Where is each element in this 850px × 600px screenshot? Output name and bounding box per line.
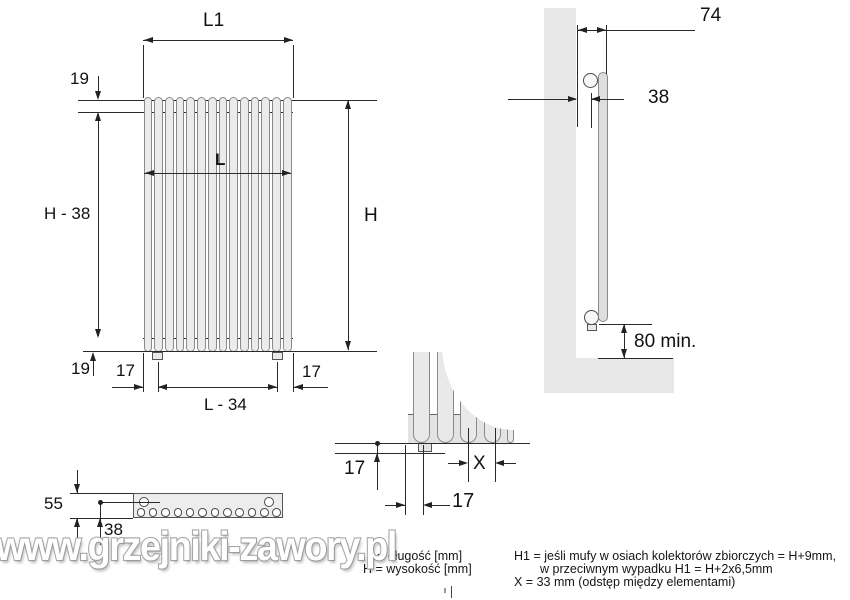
stub-line [335, 453, 445, 454]
radiator-tube [251, 97, 260, 352]
cropped-mark [451, 586, 452, 598]
tube-circle [161, 508, 170, 517]
dim-line-l1 [143, 40, 293, 41]
arrow-up-icon [95, 112, 101, 121]
radiator-tube [144, 97, 153, 352]
radiator-tube [186, 97, 195, 352]
tube-circle [211, 508, 220, 517]
collector-top-circle [583, 73, 598, 88]
radiator-tube [240, 97, 249, 352]
note-h1-line2: w przeciwnym wypadku H1 = H+2x6,5mm [540, 563, 773, 576]
dim-label-h: H [364, 206, 378, 225]
arrow-left-icon [495, 460, 504, 466]
dim-label-74: 74 [700, 6, 721, 25]
dim-label-80min: 80 min. [634, 332, 696, 351]
arrow-left-icon [423, 502, 432, 508]
note-x: X = 33 mm (odstęp między elementami) [514, 576, 735, 589]
radiator-tube [261, 97, 270, 352]
extension-line [143, 45, 144, 98]
radiator-tube [154, 97, 163, 352]
extension-line [293, 45, 294, 98]
radiator-tube [229, 97, 238, 352]
dim-line-74 [577, 30, 695, 31]
pipe-stub-detail [418, 443, 432, 452]
dim-line-17v [377, 443, 378, 490]
cropped-mark [444, 588, 446, 593]
dim-label-38: 38 [648, 88, 669, 107]
arrow-up-icon [90, 352, 96, 361]
radiator-tube [176, 97, 185, 352]
arrow-down-icon [74, 484, 80, 493]
extension-line [70, 493, 133, 494]
extension-line [577, 25, 578, 127]
extension-line [606, 25, 607, 74]
dim-label-h38: H - 38 [44, 205, 90, 222]
tube-circle [137, 508, 146, 517]
arrow-right-icon [597, 27, 606, 33]
dim-label-l1: L1 [203, 11, 224, 30]
tube-circle [235, 508, 244, 517]
dim-label-l: L [215, 151, 225, 168]
dim-line [504, 463, 516, 464]
arrow-left-icon [158, 384, 167, 390]
radiator-tube [208, 97, 217, 352]
dim-dot [98, 500, 103, 505]
radiator-tube [165, 97, 174, 352]
floor-line [598, 358, 673, 359]
dim-dot [375, 441, 380, 446]
tube-circle [223, 508, 232, 517]
arrow-left-icon [591, 96, 600, 102]
dim-line-l [144, 173, 291, 174]
tube-circle [248, 508, 257, 517]
arrow-right-icon [568, 96, 577, 102]
arrow-left-icon [144, 37, 153, 43]
dim-line [93, 361, 94, 376]
arrow-down-icon [345, 341, 351, 350]
arrow-up-icon [621, 324, 627, 333]
dim-label-17-right: 17 [302, 363, 321, 380]
tube-circle [174, 508, 183, 517]
arrow-right-icon [396, 502, 405, 508]
detail-tube [413, 352, 430, 443]
dim-label-19-bottom: 19 [71, 360, 90, 377]
dim-label-19-top: 19 [70, 70, 89, 87]
ref-line-bottom [83, 351, 377, 352]
tube-circle [272, 508, 281, 517]
dim-line-l34 [158, 387, 277, 388]
radiator-tube [283, 97, 292, 352]
legend-notes: L = długość [mm] H = wysokość [mm] H1 = … [0, 0, 850, 600]
arrow-right-icon [459, 460, 468, 466]
dim-label-17-horiz: 17 [452, 491, 474, 511]
arrow-up-icon [345, 100, 351, 109]
dim-line-h [348, 100, 349, 350]
dim-label-l34: L - 34 [204, 396, 247, 413]
dim-line [98, 76, 99, 92]
arrow-left-icon [578, 27, 587, 33]
pipe-stub-left [152, 352, 163, 360]
note-h1-line1: H1 = jeśli mufy w osiach kolektorów zbio… [514, 550, 836, 563]
radiator-tube [219, 97, 228, 352]
diagram-canvas: L1 19 H - 38 L H 19 [0, 0, 850, 600]
extension-line [468, 428, 469, 482]
arrow-right-icon [134, 384, 143, 390]
watermark: www.grzejniki-zawory.pl [0, 523, 396, 570]
tube-circle [198, 508, 207, 517]
extension-line [143, 353, 144, 392]
arrow-down-icon [95, 91, 101, 100]
valve-stub [587, 324, 597, 331]
dim-label-x: X [473, 454, 486, 473]
ref-line-top [78, 100, 377, 101]
radiator-tube [272, 97, 281, 352]
dim-line [432, 505, 450, 506]
arrow-right-icon [284, 37, 293, 43]
dim-label-17-vert: 17 [344, 459, 365, 478]
extension-line [495, 428, 496, 482]
arrow-right-icon [282, 170, 291, 176]
dim-line-38 [508, 99, 576, 100]
arrow-left-icon [294, 384, 303, 390]
arrow-down-icon [95, 329, 101, 338]
arrow-left-icon [145, 170, 154, 176]
dim-label-55: 55 [44, 495, 63, 512]
arrow-up-icon [374, 453, 380, 462]
arrow-down-icon [621, 349, 627, 358]
radiator-side-tube [598, 72, 609, 322]
axis-line [100, 502, 160, 503]
radiator-tube [197, 97, 206, 352]
extension-line [277, 362, 278, 392]
collector-bottom-circle [584, 310, 599, 325]
tube-circle [260, 508, 269, 517]
arrow-right-icon [268, 384, 277, 390]
dim-label-17-left: 17 [116, 362, 135, 379]
baseline [335, 443, 530, 444]
pipe-stub-right [272, 352, 283, 360]
dim-line-h38 [98, 114, 99, 336]
